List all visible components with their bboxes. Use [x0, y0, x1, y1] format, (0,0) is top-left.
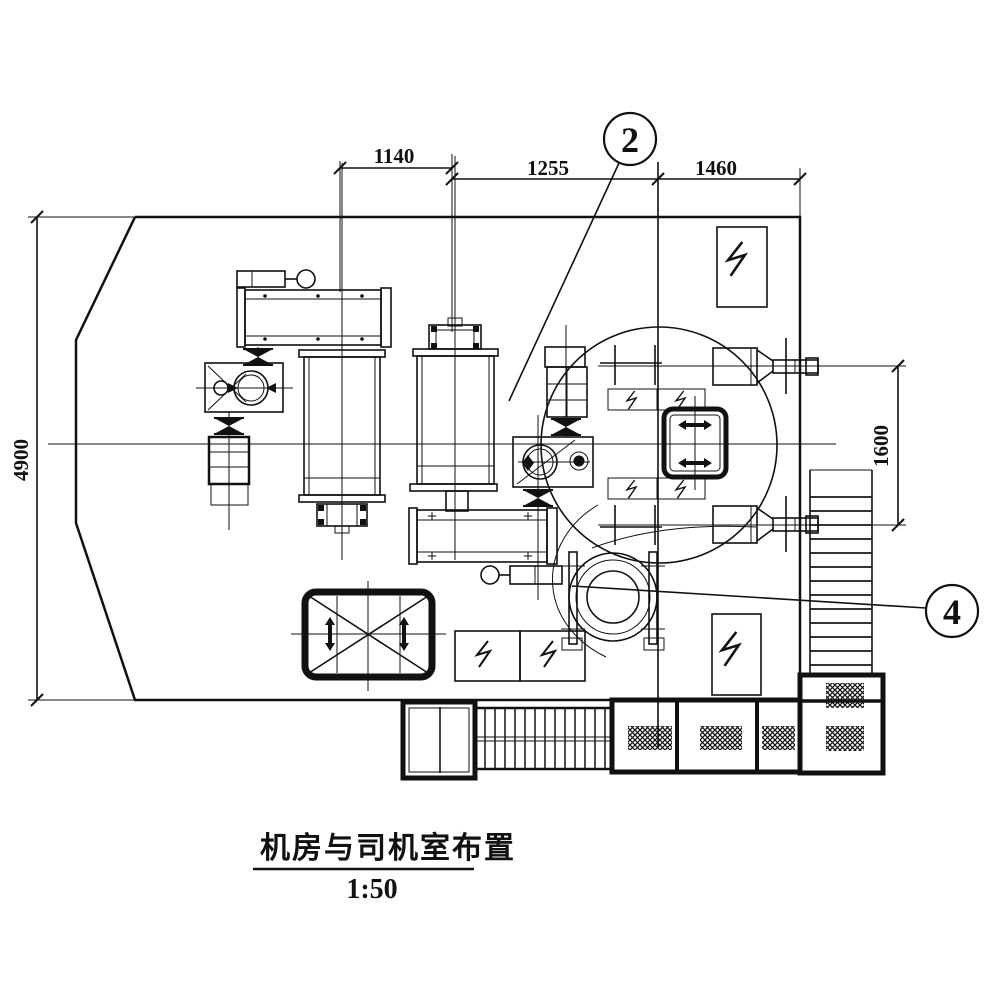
title-block: 机房与司机室布置 1:50: [253, 831, 516, 905]
callout-2-label: 2: [621, 120, 639, 160]
callout-4: 4: [572, 585, 978, 637]
break-symbol-icon: [728, 242, 745, 276]
callout-4-label: 4: [943, 592, 961, 632]
break-symbol-icon: [627, 391, 636, 409]
slewing-circle: [541, 327, 818, 563]
break-symbol-icon: [627, 480, 636, 498]
cad-sheet: 1140 1255 1460 4900 1600: [0, 0, 1000, 1000]
grating-hatch: [826, 726, 864, 751]
rope-drum-2: [410, 318, 498, 511]
break-symbol-icon: [676, 391, 685, 409]
brake-wheel-icon: [481, 566, 499, 584]
rope-outlet-bottom: [713, 496, 818, 552]
dim-1600: 1600: [869, 425, 893, 467]
coupling-icon: [551, 419, 581, 435]
brake-wheel-icon: [297, 270, 315, 288]
dim-1140: 1140: [374, 144, 415, 168]
dim-1460: 1460: [695, 156, 737, 180]
dimension-top: 1140 1255 1460: [334, 144, 806, 332]
break-symbol-icon: [676, 480, 685, 498]
machine-room-plan: 1140 1255 1460 4900 1600: [0, 0, 1000, 1000]
drawing-scale: 1:50: [346, 874, 397, 905]
access-ladder: [810, 470, 872, 675]
equipment-boxes: [612, 700, 800, 772]
break-symbol-icon: [722, 632, 739, 666]
hoist-unit-a: [196, 270, 391, 530]
drawing-title: 机房与司机室布置: [260, 831, 516, 866]
coupling-icon: [523, 490, 553, 506]
stair-landing: [403, 702, 475, 778]
grating-hatch: [700, 726, 742, 750]
stairs-horizontal: [477, 708, 612, 769]
dim-4900: 4900: [9, 439, 33, 481]
grating-hatch: [762, 726, 795, 750]
machine-room-outline: [76, 217, 800, 700]
break-symbol-icon: [542, 641, 555, 667]
grating-hatch: [826, 683, 864, 708]
right-platform: [800, 675, 883, 773]
grating-hatch: [628, 726, 672, 750]
break-symbol-icon: [477, 641, 490, 667]
dimension-left: 4900: [9, 211, 135, 706]
dim-1255: 1255: [527, 156, 569, 180]
